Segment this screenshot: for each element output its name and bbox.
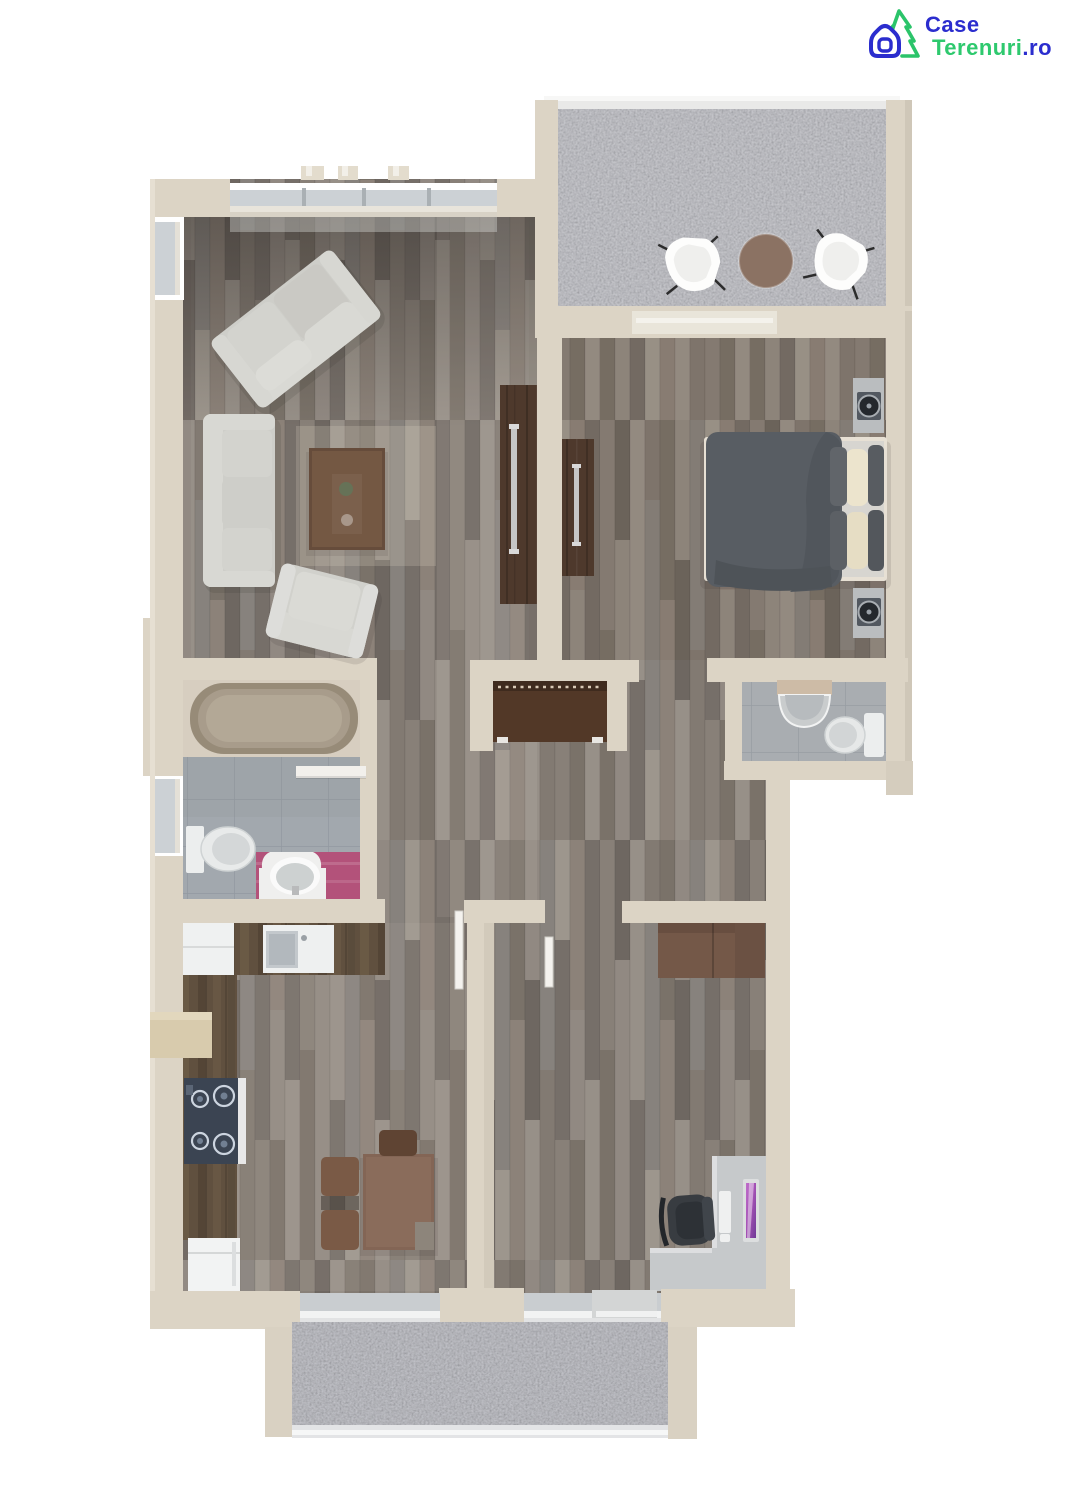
svg-text:Case: Case [925, 12, 980, 37]
svg-text:Terenuri.ro: Terenuri.ro [932, 35, 1052, 60]
